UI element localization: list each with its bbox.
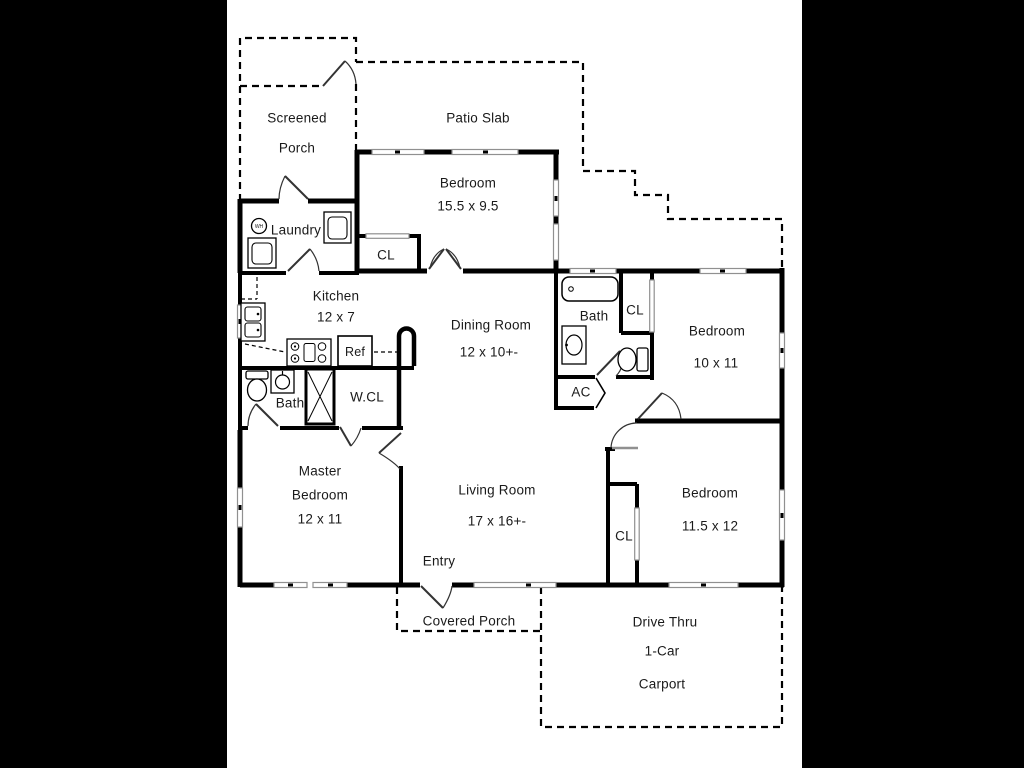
toilet-left-bowl-icon [248,379,267,401]
floorplan-drawing: WH [0,0,1024,768]
right-closet-door [650,280,655,332]
screened-porch-label-1: Screened [267,111,326,126]
bath-left-label: Bath [276,396,305,411]
kitchen-label: Kitchen [313,289,359,304]
ac-closet-label: AC [571,385,590,400]
covered-porch-label: Covered Porch [423,614,516,629]
stove-burner [318,343,326,351]
master-bedroom-label-2: Bedroom [292,488,348,503]
bath-right-closet-label: CL [626,303,644,318]
water-heater-label: WH [255,224,264,230]
ac-bifold-door [596,378,605,408]
master-bedroom-dims: 12 x 11 [298,512,343,527]
sink-dot [257,313,260,316]
carport-label-2: 1-Car [645,644,680,659]
master-bedroom-label-1: Master [299,464,341,479]
carport-label-1: Drive Thru [633,615,698,630]
letterbox-matte [0,0,1024,768]
toilet-right-bowl-icon [618,348,636,371]
living-room-label: Living Room [458,483,535,498]
lower-closet-label: CL [615,529,633,544]
lower-closet-door [635,508,640,560]
stove-center [304,344,315,362]
bedroom-lower-label: Bedroom [682,486,738,501]
walkin-closet-label: W.CL [350,390,384,405]
living-room-dims: 17 x 16+- [468,514,526,529]
bathtub-drain-icon [569,287,574,292]
toilet-right-tank-icon [637,348,648,371]
screened-porch-label-2: Porch [279,141,315,156]
bedroom-top-label: Bedroom [440,176,496,191]
refrigerator-label: Ref [345,345,365,359]
bedroom-lower-dims: 11.5 x 12 [682,519,738,534]
kitchen-closet-door [366,234,409,239]
kitchen-closet-label: CL [377,248,395,263]
entry-label: Entry [423,554,456,569]
dining-room-dims: 12 x 10+- [460,345,518,360]
bath-right-sink-icon [566,335,582,355]
faucet-dot [565,344,568,347]
bedroom-right-label: Bedroom [689,324,745,339]
bedroom-right-dims: 10 x 11 [694,356,739,371]
floorplan-image: WH Screened Porch Patio Slab Bedroom 15.… [0,0,1024,768]
kitchen-dims: 12 x 7 [317,310,355,325]
laundry-label: Laundry [271,223,321,238]
patio-slab-label: Patio Slab [446,111,510,126]
bath-left-sink-icon [276,375,290,389]
carport-label-3: Carport [639,677,685,692]
dining-room-label: Dining Room [451,318,531,333]
stove-burner [318,355,326,363]
bedroom-top-dims: 15.5 x 9.5 [437,199,498,214]
bath-right-label: Bath [580,309,609,324]
toilet-left-tank-icon [246,371,268,379]
sink-dot [257,329,260,332]
